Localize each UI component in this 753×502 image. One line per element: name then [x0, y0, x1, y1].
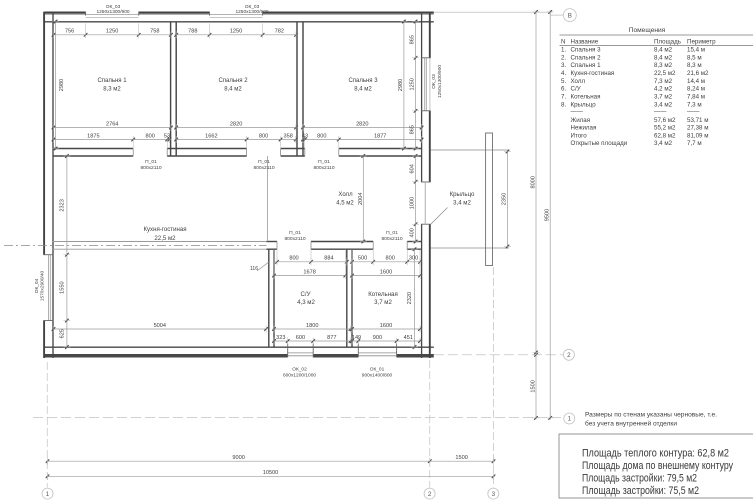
svg-text:7,3 м2: 7,3 м2 [654, 78, 673, 85]
svg-text:900: 900 [373, 335, 382, 341]
svg-text:N: N [561, 39, 565, 46]
svg-text:1877: 1877 [374, 133, 386, 139]
svg-text:800: 800 [386, 256, 395, 262]
svg-text:625: 625 [60, 329, 66, 338]
svg-text:6.: 6. [561, 86, 566, 93]
svg-text:14,4 м: 14,4 м [687, 78, 705, 85]
svg-text:без учета внутренней отделки: без учета внутренней отделки [585, 419, 677, 427]
svg-text:1250х1300/900: 1250х1300/900 [235, 9, 268, 15]
svg-text:5.: 5. [561, 78, 566, 85]
svg-text:21,6 м2: 21,6 м2 [687, 70, 709, 77]
svg-text:3: 3 [492, 491, 496, 498]
svg-text:8,3 м2: 8,3 м2 [654, 62, 673, 69]
svg-text:2820: 2820 [230, 121, 242, 127]
svg-text:8.: 8. [561, 101, 566, 108]
svg-text:П_01: П_01 [318, 159, 330, 165]
svg-text:Котельная: Котельная [571, 94, 601, 101]
svg-text:884: 884 [324, 256, 333, 262]
svg-text:9000: 9000 [232, 455, 244, 461]
svg-text:Крыльцо: Крыльцо [571, 101, 597, 108]
svg-text:Спальня 1: Спальня 1 [97, 78, 127, 84]
svg-text:2820: 2820 [356, 121, 368, 127]
svg-text:2323: 2323 [60, 199, 66, 211]
svg-text:Спальня 3: Спальня 3 [348, 78, 378, 84]
svg-text:865: 865 [410, 125, 416, 134]
svg-text:7,84 м: 7,84 м [687, 94, 705, 101]
svg-text:500: 500 [358, 256, 367, 262]
svg-text:1: 1 [46, 491, 50, 498]
svg-text:Спальня 3: Спальня 3 [571, 46, 602, 53]
svg-text:43: 43 [302, 133, 308, 139]
svg-text:——: —— [687, 109, 700, 116]
svg-text:Площадь теплого контура: 62,8: Площадь теплого контура: 62,8 м2 [582, 448, 729, 460]
svg-text:2.: 2. [561, 54, 566, 61]
svg-text:1800: 1800 [306, 323, 318, 329]
svg-text:782: 782 [275, 29, 284, 35]
svg-text:1550: 1550 [60, 281, 66, 293]
svg-text:8,4 м2: 8,4 м2 [654, 46, 673, 53]
svg-text:800: 800 [259, 133, 268, 139]
svg-text:С/У: С/У [301, 291, 311, 298]
svg-text:ОК_01: ОК_01 [370, 366, 385, 372]
svg-text:Холл: Холл [571, 78, 586, 85]
svg-text:300: 300 [409, 256, 418, 262]
svg-text:1250: 1250 [230, 29, 242, 35]
svg-text:8,3 м2: 8,3 м2 [103, 87, 121, 93]
svg-text:149: 149 [352, 335, 361, 341]
svg-text:Спальня 2: Спальня 2 [571, 54, 602, 61]
svg-text:Кухня-гостиная: Кухня-гостиная [143, 226, 186, 233]
svg-text:2320: 2320 [407, 292, 413, 304]
svg-text:В: В [568, 12, 572, 19]
svg-text:1250: 1250 [410, 78, 416, 90]
svg-text:8,5 м: 8,5 м [687, 54, 702, 61]
svg-text:3.: 3. [561, 62, 566, 69]
svg-text:Площадь: Площадь [654, 39, 681, 46]
svg-text:604: 604 [410, 164, 416, 173]
svg-text:Открытые площади: Открытые площади [571, 140, 628, 147]
svg-text:116: 116 [250, 266, 258, 272]
svg-text:8,4 м2: 8,4 м2 [224, 87, 242, 93]
svg-text:Площадь застройки: 75,5 м2: Площадь застройки: 75,5 м2 [582, 485, 699, 497]
svg-text:3,4 м2: 3,4 м2 [654, 101, 673, 108]
svg-text:С/У: С/У [571, 86, 581, 93]
svg-text:2980: 2980 [59, 79, 65, 91]
svg-text:Холл: Холл [338, 192, 353, 198]
svg-text:22,5 м2: 22,5 м2 [154, 235, 176, 242]
svg-text:1875: 1875 [87, 133, 99, 139]
svg-text:2764: 2764 [106, 121, 118, 127]
svg-text:2350: 2350 [501, 193, 507, 205]
svg-text:53,71 м: 53,71 м [687, 117, 708, 124]
svg-text:Крыльцо: Крыльцо [450, 191, 475, 198]
svg-text:Площадь застройки: 79,5 м2: Площадь застройки: 79,5 м2 [582, 473, 697, 485]
svg-text:П_01: П_01 [258, 159, 270, 165]
svg-text:758: 758 [150, 29, 159, 35]
svg-text:7,3 м: 7,3 м [687, 101, 702, 108]
svg-text:800: 800 [146, 133, 155, 139]
svg-text:81,09 м: 81,09 м [687, 132, 708, 139]
svg-text:62,8 м2: 62,8 м2 [654, 132, 676, 139]
svg-text:8000: 8000 [531, 176, 537, 188]
svg-text:800х2110: 800х2110 [284, 236, 305, 242]
svg-text:4,2 м2: 4,2 м2 [654, 86, 673, 93]
svg-text:8,4 м2: 8,4 м2 [354, 87, 372, 93]
svg-text:Котельная: Котельная [368, 291, 398, 298]
svg-text:Название: Название [571, 39, 599, 46]
svg-text:1250х1300/900: 1250х1300/900 [437, 65, 443, 98]
svg-text:Кухня-гостиная: Кухня-гостиная [571, 70, 615, 77]
svg-text:——: —— [571, 109, 584, 116]
svg-text:55,2 м2: 55,2 м2 [654, 125, 676, 132]
svg-text:3,4 м2: 3,4 м2 [654, 140, 673, 147]
svg-text:П_01: П_01 [386, 230, 398, 236]
svg-text:1000: 1000 [410, 197, 416, 209]
svg-text:7.: 7. [561, 94, 566, 101]
svg-text:2: 2 [567, 352, 571, 359]
svg-text:4,3 м2: 4,3 м2 [297, 299, 315, 306]
svg-text:1662: 1662 [205, 133, 217, 139]
svg-text:ОК_03: ОК_03 [431, 74, 437, 89]
svg-text:800: 800 [317, 133, 326, 139]
svg-text:800х2110: 800х2110 [140, 165, 161, 171]
svg-text:3,7 м2: 3,7 м2 [374, 299, 392, 306]
svg-text:8,3 м: 8,3 м [687, 62, 702, 69]
svg-text:800х2110: 800х2110 [313, 165, 334, 171]
svg-text:П_01: П_01 [145, 159, 157, 165]
svg-text:2980: 2980 [398, 79, 404, 91]
svg-text:ОК_02: ОК_02 [292, 366, 307, 372]
svg-text:323: 323 [276, 335, 285, 341]
svg-text:400: 400 [410, 228, 416, 237]
svg-text:1678: 1678 [303, 269, 315, 275]
svg-text:800х2110: 800х2110 [381, 236, 402, 242]
svg-text:1250х1300/900: 1250х1300/900 [96, 9, 129, 15]
svg-text:Итого: Итого [571, 132, 588, 139]
svg-text:800: 800 [289, 256, 298, 262]
svg-text:3,4 м2: 3,4 м2 [453, 199, 471, 206]
svg-text:——: —— [654, 109, 667, 116]
svg-text:877: 877 [327, 335, 336, 341]
svg-text:Жилая: Жилая [571, 117, 591, 124]
svg-text:Помещения: Помещения [629, 27, 666, 34]
svg-text:22,5 м2: 22,5 м2 [654, 70, 676, 77]
svg-text:358: 358 [284, 133, 293, 139]
svg-text:ОК_04: ОК_04 [34, 278, 40, 293]
svg-text:1500: 1500 [531, 380, 537, 392]
svg-text:9500: 9500 [545, 209, 551, 221]
svg-text:451: 451 [404, 335, 413, 341]
svg-text:57,6 м2: 57,6 м2 [654, 117, 676, 124]
svg-text:3,7 м2: 3,7 м2 [654, 94, 673, 101]
svg-text:15,4 м: 15,4 м [687, 46, 705, 53]
svg-text:900х1400/800: 900х1400/800 [362, 373, 393, 379]
svg-text:1250: 1250 [106, 29, 118, 35]
svg-text:2: 2 [428, 491, 432, 498]
svg-text:756: 756 [65, 29, 74, 35]
svg-text:Площадь дома по внешнему конту: Площадь дома по внешнему контуру [582, 460, 734, 472]
svg-text:8,24 м: 8,24 м [687, 86, 705, 93]
svg-text:2004: 2004 [358, 193, 364, 205]
svg-text:5004: 5004 [154, 323, 166, 329]
svg-text:8,4 м2: 8,4 м2 [654, 54, 673, 61]
svg-text:53: 53 [164, 133, 170, 139]
svg-text:788: 788 [188, 29, 197, 35]
svg-text:4.: 4. [561, 70, 566, 77]
svg-text:1: 1 [568, 416, 572, 423]
svg-text:27,38 м: 27,38 м [687, 125, 708, 132]
svg-text:865: 865 [410, 35, 416, 44]
svg-text:П_01: П_01 [289, 230, 301, 236]
svg-text:Спальня 2: Спальня 2 [218, 78, 248, 84]
svg-text:600: 600 [296, 335, 305, 341]
svg-text:1.: 1. [561, 46, 566, 53]
svg-text:800х2110: 800х2110 [253, 165, 274, 171]
svg-text:1600: 1600 [380, 269, 392, 275]
svg-text:Размеры по стенам указаны черн: Размеры по стенам указаны черновые, т.е. [585, 411, 717, 418]
svg-text:1570х2900/40: 1570х2900/40 [40, 270, 46, 301]
svg-text:Нежилая: Нежилая [571, 125, 597, 132]
svg-text:4,5 м2: 4,5 м2 [336, 201, 354, 207]
svg-text:Периметр: Периметр [687, 39, 716, 46]
svg-text:1600: 1600 [380, 323, 392, 329]
svg-text:600х1200/1000: 600х1200/1000 [283, 373, 316, 379]
svg-text:Спальня 1: Спальня 1 [571, 62, 602, 69]
svg-text:1500: 1500 [455, 455, 467, 461]
svg-text:10500: 10500 [263, 470, 279, 476]
svg-text:7,7 м: 7,7 м [687, 140, 702, 147]
